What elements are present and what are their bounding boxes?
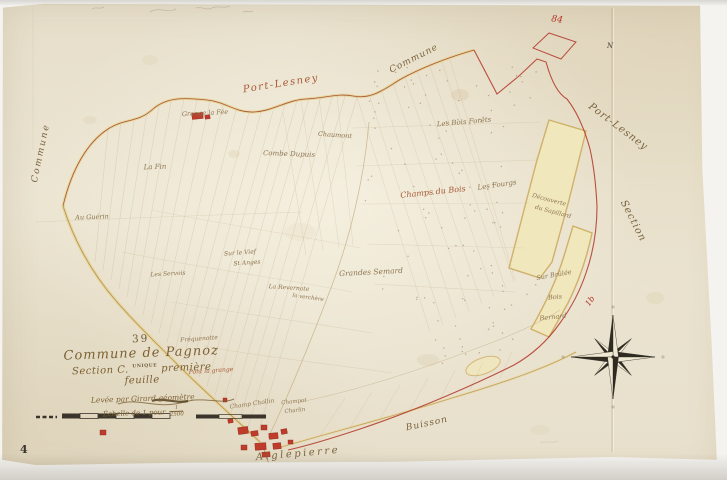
scale-fraction: 1 2500 bbox=[169, 406, 183, 419]
map-label: La Fin bbox=[144, 163, 167, 172]
section-prefix: Section C. bbox=[72, 364, 129, 377]
map-label: Bois bbox=[548, 292, 563, 301]
map-label: du Sapillard bbox=[534, 204, 572, 220]
map-label: Grange la Fée bbox=[182, 108, 229, 118]
map-label: Combe Dupuis bbox=[263, 149, 315, 159]
map-label: Commune bbox=[30, 122, 52, 183]
map-label: Charlin bbox=[284, 407, 305, 415]
map-label: 1b bbox=[583, 294, 596, 308]
map-label: Sur le Vief bbox=[224, 248, 256, 257]
map-label: la verchère bbox=[292, 293, 324, 303]
scale-label: Échelle de 1 pour bbox=[103, 408, 166, 418]
map-label: Au Guérin bbox=[75, 212, 109, 221]
page-number: 4 bbox=[20, 443, 28, 456]
map-label: Buisson bbox=[405, 415, 449, 434]
map-sheet: CommunePort-LesneyCommune84Port-LesneySe… bbox=[0, 0, 727, 480]
unique-stamp: UNIQUE bbox=[132, 363, 157, 369]
map-label: Les Servois bbox=[150, 270, 185, 279]
map-label: Sur Brûlée bbox=[536, 268, 573, 282]
cadastral-map-scan: CommunePort-LesneyCommune84Port-LesneySe… bbox=[0, 0, 727, 480]
map-label: Les Fourgs bbox=[477, 178, 517, 191]
map-label: Champs du Bois bbox=[400, 184, 466, 200]
surveyor-line: Levée par Girard géomètre bbox=[57, 391, 229, 406]
map-label: Bernard bbox=[539, 312, 567, 323]
map-label: Champ Chollin bbox=[229, 397, 275, 410]
map-label: Chaumont bbox=[318, 130, 353, 140]
map-label: Commune bbox=[388, 42, 440, 75]
section-title: Section C. UNIQUE première feuille bbox=[56, 361, 229, 389]
map-label: La Revernote bbox=[268, 283, 309, 293]
map-label: Aiglepierre bbox=[255, 445, 340, 463]
map-label: Port-Lesney bbox=[242, 73, 320, 96]
map-label: Champot bbox=[281, 398, 307, 407]
map-label: N bbox=[607, 42, 613, 50]
map-label: St Anges bbox=[233, 259, 261, 268]
map-label: Port-Lesney bbox=[586, 101, 650, 153]
map-label: Section bbox=[618, 198, 648, 243]
title-block: 39 Commune de Pagnoz Section C. UNIQUE p… bbox=[55, 330, 230, 422]
map-label: 84 bbox=[551, 14, 564, 25]
map-label: Grandes Semard bbox=[339, 266, 403, 278]
map-label: Les Bois Forêts bbox=[436, 116, 491, 129]
